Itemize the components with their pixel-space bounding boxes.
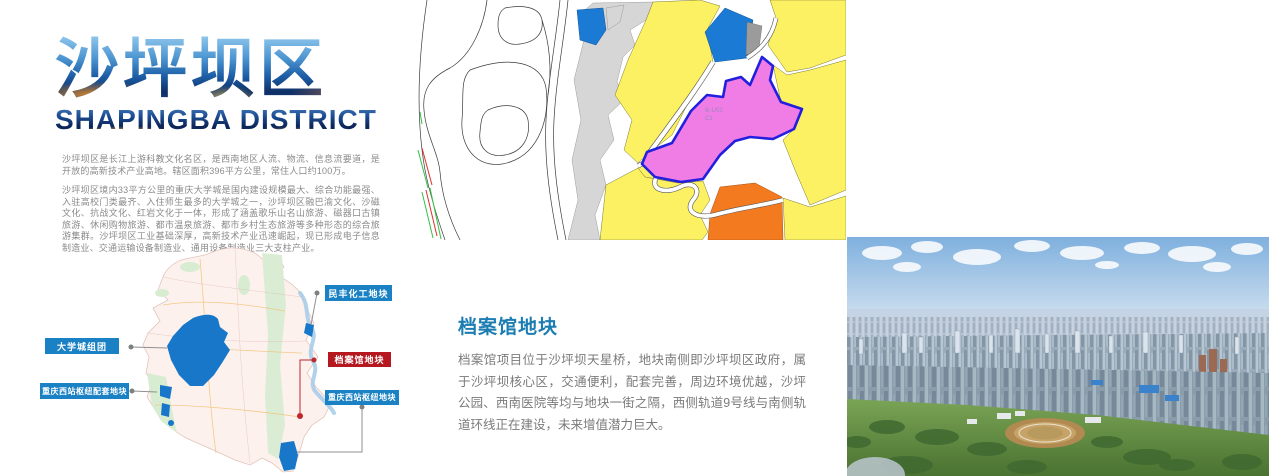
map-label-west-station-support-parcel: 重庆西站枢纽配套地块 (40, 383, 129, 399)
title-block: 沙坪坝区 SHAPINGBA DISTRICT (55, 36, 395, 135)
intro-paragraph-2: 沙坪坝区境内33平方公里的重庆大学城是国内建设规模最大、综合功能最强、入驻高校门… (62, 185, 380, 254)
map-label-west-station-hub-parcel: 重庆西站枢纽地块 (325, 390, 399, 405)
parcel-code-label: B-1/01 (705, 108, 723, 114)
district-title-cn: 沙坪坝区 (55, 36, 395, 103)
archive-section-heading: 档案馆地块 (458, 312, 806, 339)
intro-paragraph-1: 沙坪坝区是长江上游科教文化名区，是西南地区人流、物流、信息流要道，是开放的高新技… (62, 154, 380, 177)
archive-parcel-section: 档案馆地块 档案馆项目位于沙坪坝天星桥，地块南侧即沙坪坝区政府，属于沙坪坝核心区… (458, 312, 806, 436)
aerial-city-photo (847, 237, 1269, 476)
map-label-minfeng-chemical-parcel: 民丰化工地块 (325, 285, 392, 301)
parcel-subcode-label: C1 (705, 116, 713, 122)
zoning-map: B-1/01 C1 (410, 0, 846, 240)
archive-section-body: 档案馆项目位于沙坪坝天星桥，地块南侧即沙坪坝区政府，属于沙坪坝核心区，交通便利，… (458, 350, 806, 436)
district-title-en: SHAPINGBA DISTRICT (55, 105, 395, 134)
map-label-archive-parcel: 档案馆地块 (328, 352, 391, 367)
photo-stadium (1005, 418, 1085, 448)
slide-canvas: 沙坪坝区 SHAPINGBA DISTRICT 沙坪坝区是长江上游科教文化名区，… (0, 0, 1269, 476)
map-label-university-town-cluster: 大学城组团 (45, 338, 119, 354)
